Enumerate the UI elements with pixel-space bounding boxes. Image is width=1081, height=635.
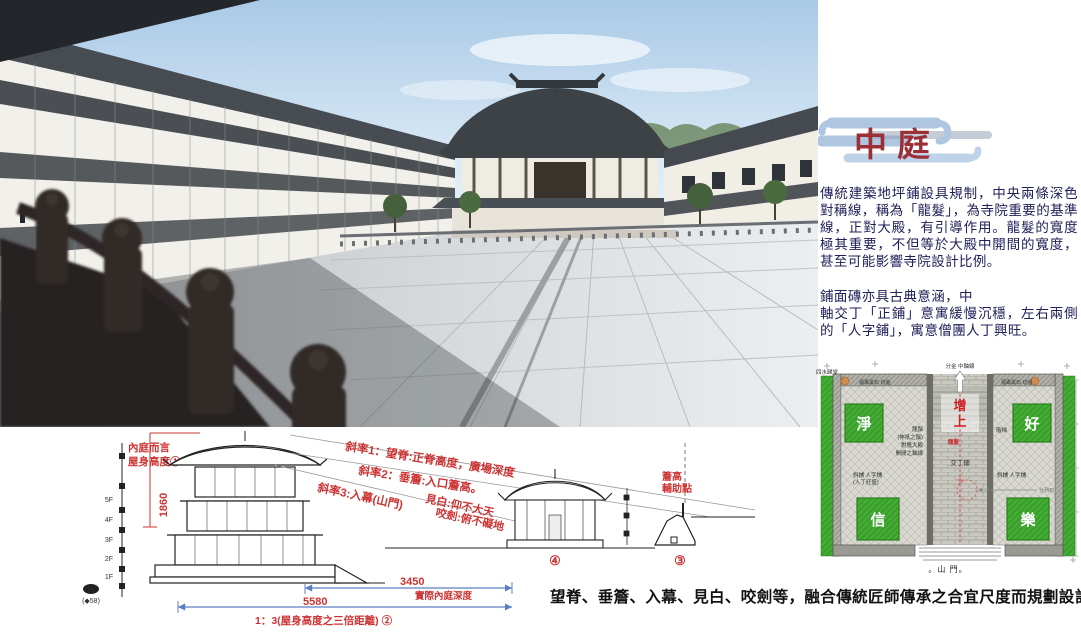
mini-scale	[624, 488, 629, 545]
courtyard-photo	[0, 0, 818, 427]
aux-point-line1: 簷高	[662, 470, 682, 483]
plan-drawing: 四水歸堂	[815, 360, 1081, 595]
slope-annotations: 斜率1：望脊:正脊高度，廣場深度 斜率2：垂簷:入口簷高。 斜率3:入幕(山門)…	[315, 439, 516, 533]
height-1860: 1860	[158, 493, 170, 517]
main-hall-section	[150, 431, 385, 583]
gate-wall: 。山 門。	[833, 545, 1063, 574]
longxu-line4: 開間之軸線	[895, 449, 923, 457]
herringbone-right-label: 斜鋪 人字鋪	[997, 471, 1027, 479]
herringbone-left-note: (人丁旺盛)	[853, 478, 879, 486]
aux-point-line2: 輔助點	[662, 482, 692, 495]
inner-label-2: 屋身高度①	[128, 455, 181, 468]
slide: 中庭 傳統建築地坪鋪設具規制，中央兩條深色對稱線，稱為「龍髮」，為寺院重要的基準…	[0, 0, 1081, 635]
floor-label: 3F	[105, 537, 113, 544]
ratio-note: 1：3(屋身高度之三倍距離) ②	[255, 614, 393, 627]
planter-char-xin: 信	[870, 511, 885, 529]
zengshang-char-1: 增	[953, 398, 966, 413]
floor-label: 4F	[105, 517, 113, 524]
intro-paragraph-2-rest: 軸交丁「正鋪」意寓緩慢沉穩，左右兩側的「人字鋪」，寓意僧團人丁興旺。	[820, 306, 1078, 338]
jiaoding-label: 交丁鋪	[950, 458, 970, 467]
intro-paragraph-1: 傳統建築地坪鋪設具規制，中央兩條深色對稱線，稱為「龍髮」，為寺院重要的基準線，正…	[820, 185, 1078, 270]
bottom-caption: 望脊、垂簷、入幕、見白、咬劍等，融合傳統匠師傳承之合宜尺度而規劃設計	[550, 585, 1080, 607]
datum-label: (◆58)	[82, 598, 100, 605]
longxu-line1: 龍鬚	[912, 425, 924, 433]
dim-3450: 3450	[400, 576, 424, 588]
planter-char-hao: 好	[1023, 415, 1039, 433]
right-panel: 中庭 傳統建築地坪鋪設具規制，中央兩條深色對稱線，稱為「龍髮」，為寺院重要的基準…	[818, 0, 1081, 360]
herringbone-left-label: 斜鋪 人字鋪	[853, 471, 883, 479]
intro-paragraph-2-line1: 鋪面磚亦具古典意涵，中	[820, 289, 973, 304]
dimension-lines: 3450 實際內庭深度 5580 1：3(屋身高度之三倍距離) ②	[178, 576, 512, 627]
page-title: 中庭	[854, 118, 940, 166]
intro-paragraph-2: 鋪面磚亦具古典意涵，中 軸交丁「正鋪」意寓緩慢沉穩，左右兩側的「人字鋪」，寓意僧…	[820, 288, 1078, 339]
floor-label: 2F	[105, 556, 113, 563]
inner-label-1: 內庭而言	[128, 441, 170, 454]
drum-stone-left	[841, 377, 849, 385]
dim-depth-label: 實際內庭深度	[415, 590, 473, 602]
detail-callout-label: 分列石	[1039, 487, 1054, 494]
stairs-label: 階梯	[996, 426, 1008, 434]
stone-label-left: 福專黑石 切邊	[859, 379, 890, 386]
planter-char-le: 樂	[1020, 511, 1036, 529]
right-slope-section: 簷高 輔助點 ③	[655, 443, 755, 568]
floor-label: 5F	[105, 497, 113, 504]
floor-label: 1F	[105, 574, 113, 581]
longxu-line3: 對應大殿	[901, 441, 924, 449]
storey-scale: 5F 4F 3F 2F 1F (◆58)	[82, 443, 125, 605]
gate-label: 。山 門。	[928, 564, 967, 574]
stone-label-right: 福專黑石 切邊	[1001, 379, 1032, 386]
circled-4: ④	[549, 553, 561, 568]
zengshang-char-2: 上	[953, 414, 966, 429]
longxu-line2: (神祇之鬚)	[897, 433, 923, 441]
planter-char-jing: 淨	[856, 415, 871, 433]
axis-label: 分金 中軸線	[945, 362, 975, 370]
dim-5580: 5580	[303, 596, 327, 608]
longfa-red-label: 龍髮	[948, 438, 960, 446]
circled-3: ③	[674, 553, 686, 568]
